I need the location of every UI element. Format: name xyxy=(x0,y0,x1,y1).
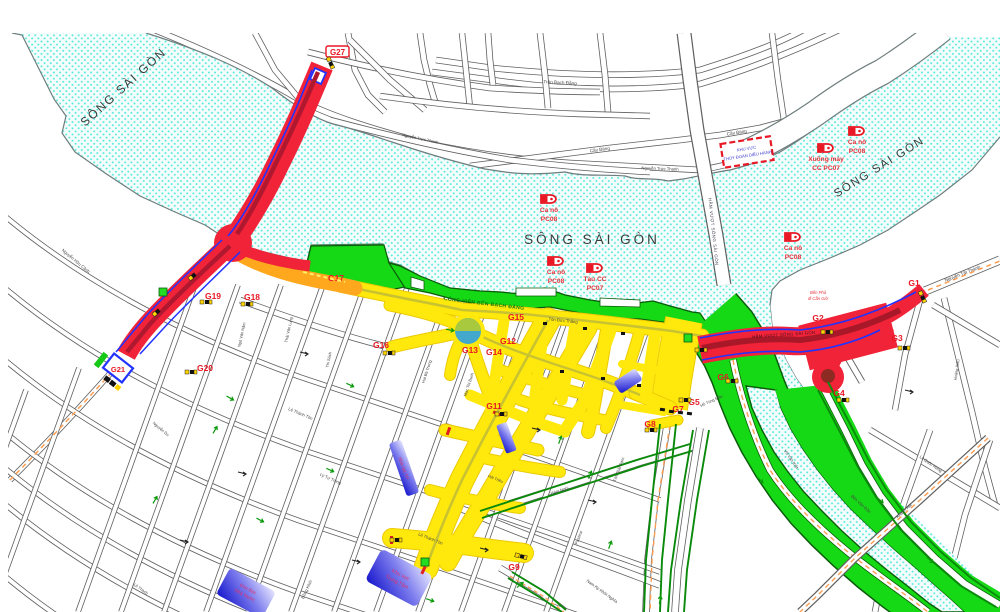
svg-text:G20: G20 xyxy=(197,363,213,373)
svg-text:Ca nô: Ca nô xyxy=(784,245,802,252)
svg-text:PC08: PC08 xyxy=(785,254,802,261)
svg-text:G1: G1 xyxy=(908,278,920,288)
svg-text:PC07: PC07 xyxy=(587,285,604,292)
svg-text:Ca nô: Ca nô xyxy=(848,139,866,146)
svg-text:G11: G11 xyxy=(486,401,502,411)
svg-text:G15: G15 xyxy=(508,312,524,322)
svg-text:Ca nô: Ca nô xyxy=(540,207,558,214)
svg-text:Bến Phà: Bến Phà xyxy=(810,290,827,295)
svg-text:PC08: PC08 xyxy=(541,216,558,223)
svg-text:Tàu CC: Tàu CC xyxy=(583,276,606,283)
svg-text:PC08: PC08 xyxy=(849,148,866,155)
svg-text:G2: G2 xyxy=(812,313,824,323)
svg-text:G4: G4 xyxy=(833,388,845,398)
svg-text:G21: G21 xyxy=(111,365,125,374)
svg-text:G18: G18 xyxy=(244,292,260,302)
svg-text:Xuồng máy: Xuồng máy xyxy=(808,154,844,163)
svg-text:G19: G19 xyxy=(205,291,221,301)
svg-text:CC PC07: CC PC07 xyxy=(812,165,840,172)
svg-text:G13: G13 xyxy=(462,345,478,355)
svg-text:đi Cần Giờ: đi Cần Giờ xyxy=(808,296,828,301)
svg-text:G12: G12 xyxy=(500,336,516,346)
svg-text:Ca nô: Ca nô xyxy=(547,269,565,276)
svg-text:SÔNG SÀI GÒN: SÔNG SÀI GÒN xyxy=(524,232,660,247)
svg-text:G27: G27 xyxy=(330,48,346,57)
svg-text:G16: G16 xyxy=(373,340,389,350)
svg-text:G8: G8 xyxy=(644,419,656,429)
svg-text:G14: G14 xyxy=(486,347,502,357)
svg-text:PC08: PC08 xyxy=(548,278,565,285)
svg-text:G9: G9 xyxy=(508,562,520,572)
svg-text:G3: G3 xyxy=(891,333,903,343)
